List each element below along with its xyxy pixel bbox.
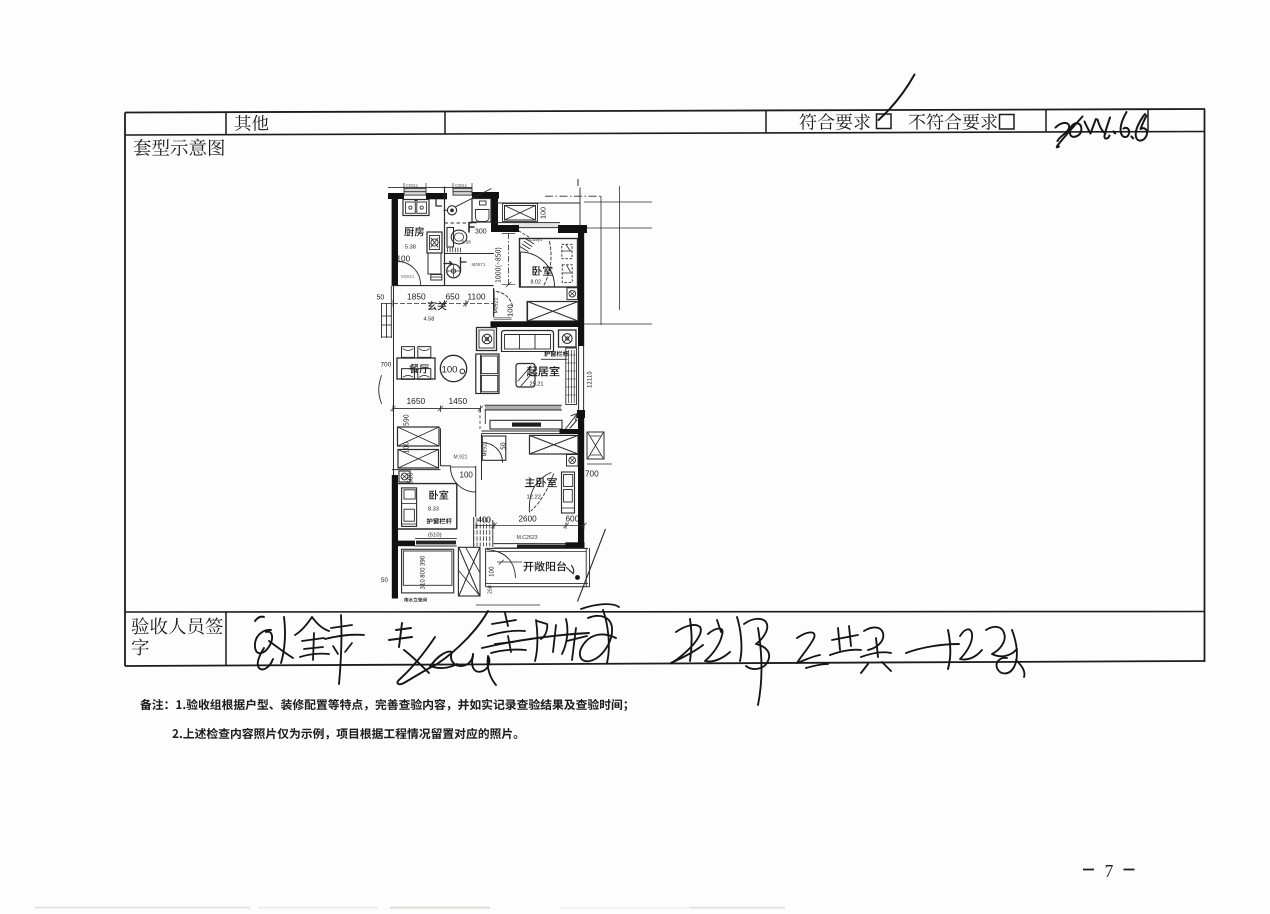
svg-text:700: 700 [585,470,599,479]
svg-text:C0611: C0611 [406,183,419,188]
svg-text:600: 600 [566,515,580,524]
svg-text:M.921: M.921 [454,455,468,461]
svg-text:300: 300 [475,229,487,236]
svg-text:50: 50 [377,295,385,302]
svg-text:1450: 1450 [449,396,468,406]
svg-text:M0821: M0821 [401,274,415,279]
svg-text:5.38: 5.38 [405,245,416,251]
svg-text:100: 100 [442,365,458,376]
svg-text:100: 100 [539,207,548,219]
svg-text:2600: 2600 [519,515,538,524]
svg-text:25.21: 25.21 [530,382,544,388]
svg-text:1650: 1650 [407,396,426,406]
svg-text:100: 100 [506,304,515,317]
svg-text:4.58: 4.58 [462,240,472,246]
svg-text:8.02: 8.02 [531,280,542,286]
svg-text:M.C2623: M.C2623 [517,535,538,541]
svg-text:50: 50 [381,577,388,584]
svg-text:C0611: C0611 [455,183,468,188]
svg-text:C15(4: C15(4 [529,237,542,243]
svg-text:7: 7 [1105,861,1114,881]
svg-text:650: 650 [446,292,460,302]
svg-text:400: 400 [478,516,492,525]
svg-text:12.22: 12.22 [527,495,542,501]
svg-text:M0871: M0871 [472,262,486,267]
svg-text:4.58: 4.58 [424,317,435,323]
svg-text:8.33: 8.33 [428,507,439,513]
svg-text:1850: 1850 [407,292,426,302]
svg-text:1100: 1100 [468,292,486,302]
svg-text:100: 100 [460,471,474,480]
svg-text:(510): (510) [428,533,442,539]
svg-text:700: 700 [381,362,392,369]
